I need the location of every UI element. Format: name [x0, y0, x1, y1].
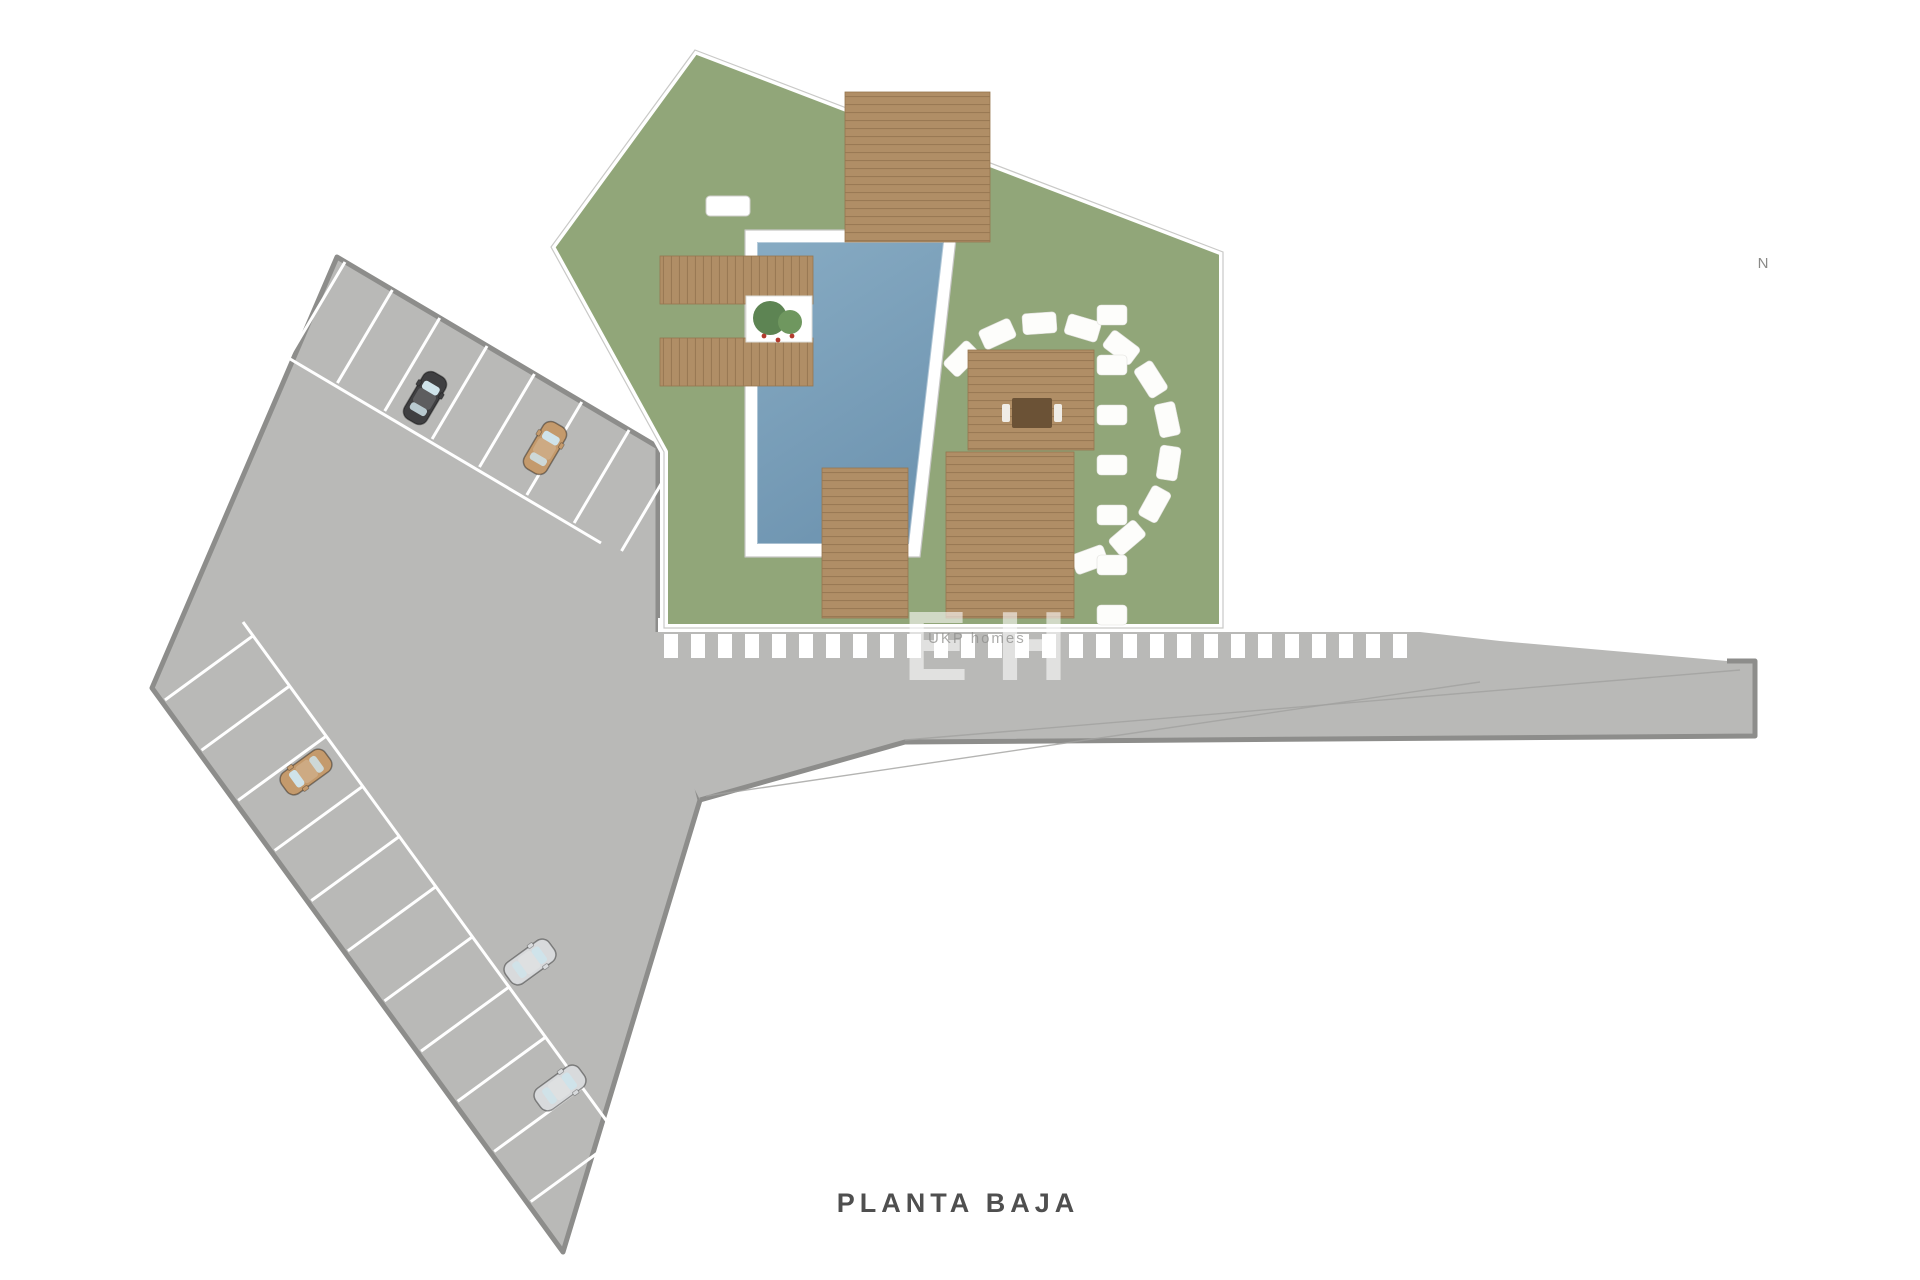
- zebra-stripe: [1366, 634, 1380, 658]
- compass-label: N: [1758, 255, 1769, 272]
- zebra-stripe: [718, 634, 732, 658]
- parking-lot: [152, 257, 700, 1252]
- planter-plant: [778, 310, 802, 334]
- street: [650, 618, 1755, 800]
- planter-flower: [762, 334, 767, 339]
- sun-lounger: [706, 196, 750, 216]
- path-stone: [1097, 355, 1127, 375]
- zebra-stripe: [1312, 634, 1326, 658]
- zebra-stripe: [664, 634, 678, 658]
- zebra-stripe: [1096, 634, 1110, 658]
- pavilion-table: [1012, 398, 1052, 428]
- path-stone: [1097, 455, 1127, 475]
- path-stone: [1097, 505, 1127, 525]
- wood-deck: [845, 92, 990, 242]
- site-plan-svg: EH UKP homes N PLANTA BAJA: [0, 0, 1920, 1280]
- site-plan-page: EH UKP homes N PLANTA BAJA: [0, 0, 1920, 1280]
- road-surface: [650, 632, 1755, 800]
- zebra-stripe: [853, 634, 867, 658]
- zebra-stripe: [1150, 634, 1164, 658]
- path-stone: [1097, 305, 1127, 325]
- zebra-stripe: [1231, 634, 1245, 658]
- zebra-stripe: [1204, 634, 1218, 658]
- zebra-stripe: [1285, 634, 1299, 658]
- planter-flower: [776, 338, 781, 343]
- zebra-stripe: [1177, 634, 1191, 658]
- zebra-stripe: [691, 634, 705, 658]
- zebra-stripe: [880, 634, 894, 658]
- zebra-stripe: [1258, 634, 1272, 658]
- watermark: EH UKP homes: [903, 591, 1095, 701]
- zebra-stripe: [1393, 634, 1407, 658]
- zebra-stripe: [772, 634, 786, 658]
- pavilion-chair: [1002, 404, 1010, 422]
- path-stone: [1097, 405, 1127, 425]
- stepping-stone: [1022, 312, 1057, 335]
- zebra-stripe: [1339, 634, 1353, 658]
- planter-flower: [790, 334, 795, 339]
- path-stone: [1097, 605, 1127, 625]
- pavilion-chair: [1054, 404, 1062, 422]
- plan-title: PLANTA BAJA: [837, 1188, 1080, 1218]
- zebra-stripe: [1123, 634, 1137, 658]
- zebra-stripe: [826, 634, 840, 658]
- wood-deck: [660, 338, 813, 386]
- zebra-stripe: [799, 634, 813, 658]
- zebra-stripe: [745, 634, 759, 658]
- wood-deck: [822, 468, 908, 618]
- path-stone: [1097, 555, 1127, 575]
- watermark-text: UKP homes: [928, 630, 1026, 647]
